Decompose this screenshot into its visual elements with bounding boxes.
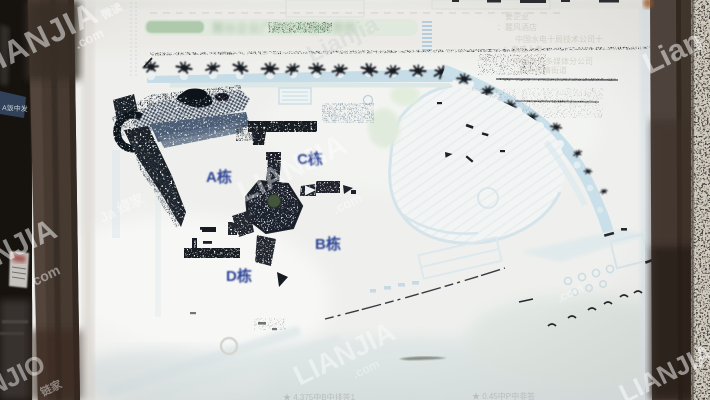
svg-text:★ 0.45中P中非答: ★ 0.45中P中非答: [472, 391, 535, 400]
svg-text:★ 4.375中B中排答1: ★ 4.375中B中排答1: [283, 392, 356, 400]
